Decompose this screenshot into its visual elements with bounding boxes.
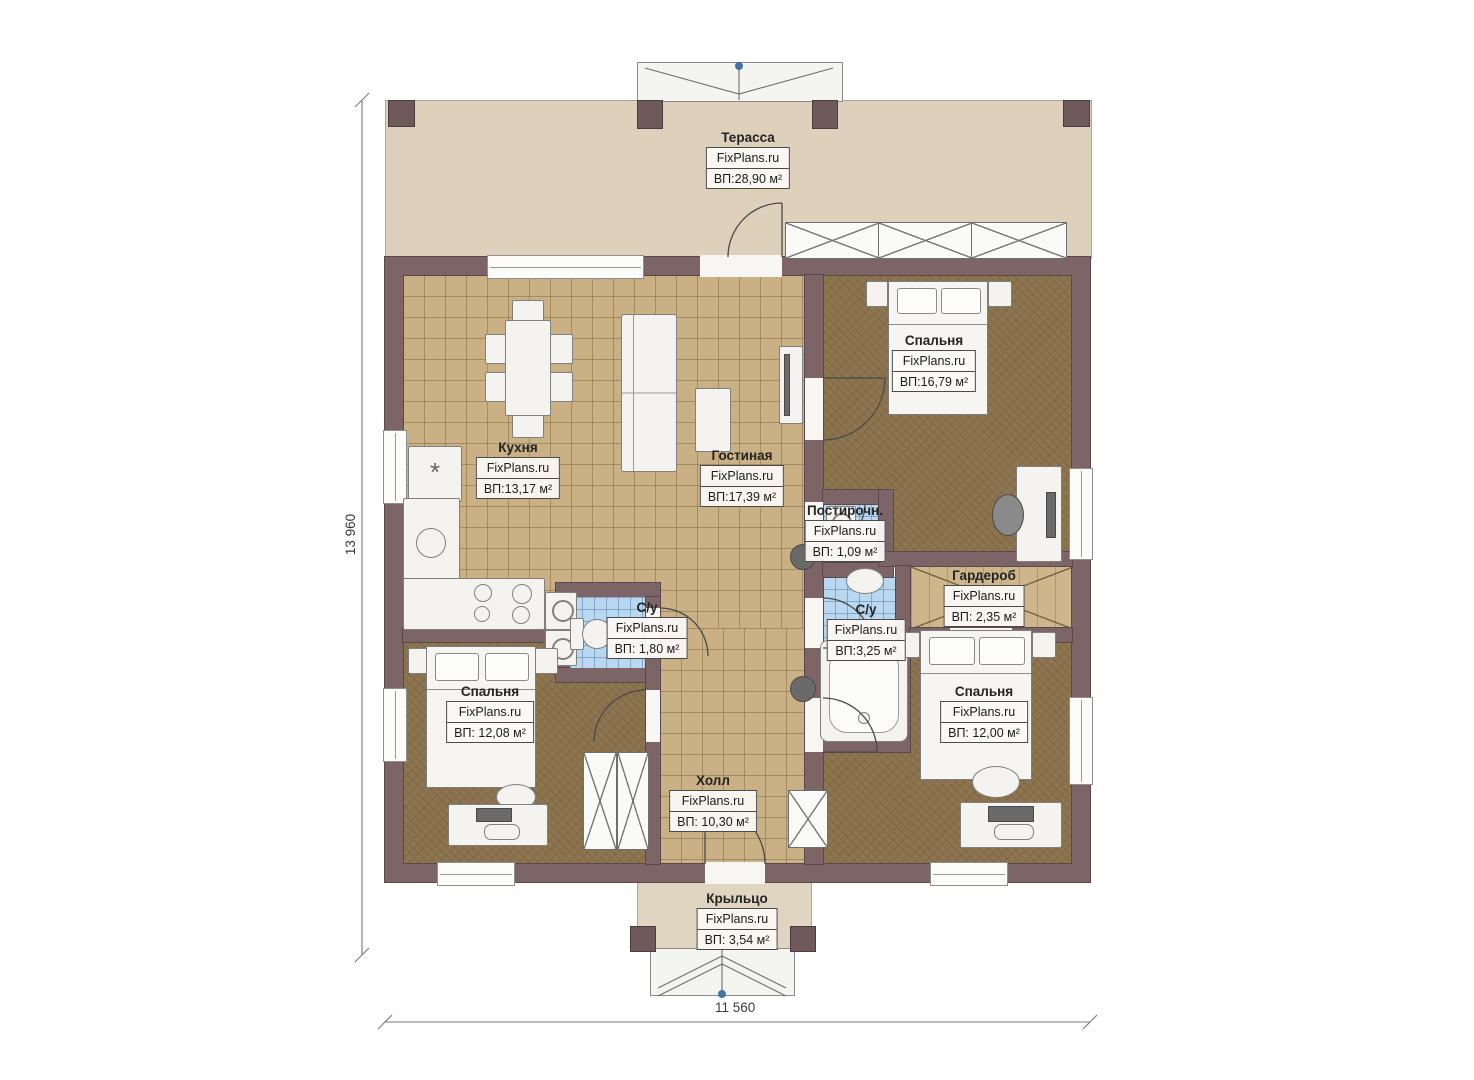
room-name: Спальня [892, 333, 976, 348]
dimension-vertical: 13 960 [343, 514, 358, 555]
kitchen-sink-icon [416, 528, 446, 558]
terrace-post [637, 100, 663, 129]
room-name: Холл [669, 773, 757, 788]
room-info-box: FixPlans.ru ВП:28,90 м² [706, 147, 790, 189]
room-name: Гардероб [944, 568, 1025, 583]
room-area: ВП: 2,35 м² [945, 606, 1024, 627]
office-chair [992, 494, 1024, 536]
fridge-icon: * [408, 446, 462, 502]
room-area: ВП: 1,09 м² [806, 541, 885, 562]
room-area: ВП: 10,30 м² [670, 811, 756, 832]
room-name: С/у [607, 600, 688, 615]
stove-burner [512, 584, 532, 604]
room-area: ВП: 12,08 м² [447, 722, 533, 743]
dining-table [505, 320, 551, 416]
pillow [485, 653, 529, 681]
room-brand: FixPlans.ru [608, 618, 687, 638]
room-info-box: FixPlans.ru ВП: 12,00 м² [940, 701, 1028, 743]
room-label-porch: Крыльцо FixPlans.ru ВП: 3,54 м² [697, 891, 778, 950]
bath-large-door-opening [805, 598, 823, 648]
wardrobe-cabinet [788, 790, 828, 848]
room-area: ВП:13,17 м² [477, 478, 559, 499]
room-brand: FixPlans.ru [477, 458, 559, 478]
nightstand [988, 281, 1012, 307]
kitchen-side-window [383, 430, 407, 504]
terrace-post [1063, 100, 1090, 127]
desk-chair [972, 766, 1020, 798]
room-area: ВП: 1,80 м² [608, 638, 687, 659]
porch-post [630, 926, 656, 952]
room-name: Спальня [446, 684, 534, 699]
porch-post [790, 926, 816, 952]
terrace-post [812, 100, 838, 129]
tv-stand [779, 346, 803, 424]
room-brand: FixPlans.ru [828, 620, 905, 640]
room-name: Терасса [706, 130, 790, 145]
room-name: С/у [827, 602, 906, 617]
room-area: ВП:16,79 м² [893, 371, 975, 392]
room-info-box: FixPlans.ru ВП:16,79 м² [892, 350, 976, 392]
pillow [435, 653, 479, 681]
room-label-bedroom-top-right: Спальня FixPlans.ru ВП:16,79 м² [892, 333, 976, 392]
room-label-kitchen: Кухня FixPlans.ru ВП:13,17 м² [476, 440, 560, 499]
room-name: Крыльцо [697, 891, 778, 906]
bedroom-bl-door-opening [646, 690, 660, 742]
room-brand: FixPlans.ru [698, 909, 777, 929]
room-label-bath-large: С/у FixPlans.ru ВП:3,25 м² [827, 602, 906, 661]
room-info-box: FixPlans.ru ВП: 10,30 м² [669, 790, 757, 832]
terrace-steps [637, 62, 843, 102]
wall-bath-small-bottom [556, 668, 660, 682]
room-info-box: FixPlans.ru ВП: 1,09 м² [805, 520, 886, 562]
bathtub-drain [858, 712, 870, 724]
coffee-table [695, 388, 731, 452]
tv-icon [784, 354, 790, 416]
room-info-box: FixPlans.ru ВП:13,17 м² [476, 457, 560, 499]
terrace-post [388, 100, 415, 127]
pillow [941, 288, 981, 314]
dining-chair [512, 414, 544, 438]
room-name: Гостиная [700, 448, 784, 463]
room-brand: FixPlans.ru [945, 586, 1024, 606]
glazing-panel [878, 222, 973, 259]
bedroom-tr-door-opening [805, 378, 823, 440]
room-info-box: FixPlans.ru ВП: 12,08 м² [446, 701, 534, 743]
bedroom-bl-bottom-window [437, 862, 515, 886]
kitchen-window [487, 255, 644, 279]
keyboard-icon [484, 824, 520, 840]
glazing-panel [971, 222, 1067, 259]
room-area: ВП:17,39 м² [701, 486, 783, 507]
dining-chair [549, 334, 573, 364]
room-label-wardrobe: Гардероб FixPlans.ru ВП: 2,35 м² [944, 568, 1025, 627]
room-brand: FixPlans.ru [806, 521, 885, 541]
room-label-terrace: Терасса FixPlans.ru ВП:28,90 м² [706, 130, 790, 189]
room-area: ВП: 12,00 м² [941, 722, 1027, 743]
nightstand [408, 648, 428, 674]
room-area: ВП:28,90 м² [707, 168, 789, 189]
room-brand: FixPlans.ru [941, 702, 1027, 722]
room-info-box: FixPlans.ru ВП: 3,54 м² [697, 908, 778, 950]
nightstand [1032, 632, 1056, 658]
room-label-hall: Холл FixPlans.ru ВП: 10,30 м² [669, 773, 757, 832]
terrace-door-opening [700, 255, 782, 277]
sofa-icon [621, 314, 677, 472]
porch-steps [650, 948, 795, 996]
room-label-bath-small: С/у FixPlans.ru ВП: 1,80 м² [607, 600, 688, 659]
nightstand [866, 281, 888, 307]
room-info-box: FixPlans.ru ВП: 1,80 м² [607, 617, 688, 659]
room-brand: FixPlans.ru [447, 702, 533, 722]
bedroom-br-side-window [1069, 697, 1093, 785]
sink-icon [846, 568, 884, 594]
glazing-panel [785, 222, 880, 259]
room-info-box: FixPlans.ru ВП:17,39 м² [700, 465, 784, 507]
stove-burner [474, 584, 492, 602]
bedroom-tr-side-window [1069, 468, 1093, 560]
wall-bedroom-bl-top [403, 628, 556, 642]
wardrobe-cabinet [583, 752, 617, 850]
printer-icon [476, 808, 512, 822]
room-label-laundry: Постирочн. FixPlans.ru ВП: 1,09 м² [805, 503, 886, 562]
pillow [929, 637, 975, 665]
pillow [979, 637, 1025, 665]
stove-burner [474, 606, 490, 622]
floor-plan-canvas: * [0, 0, 1474, 1080]
room-info-box: FixPlans.ru ВП:3,25 м² [827, 619, 906, 661]
room-name: Кухня [476, 440, 560, 455]
room-brand: FixPlans.ru [893, 351, 975, 371]
room-brand: FixPlans.ru [707, 148, 789, 168]
pillow [897, 288, 937, 314]
room-name: Постирочн. [805, 503, 886, 518]
bedroom-bl-side-window [383, 688, 407, 762]
dimension-horizontal: 11 560 [715, 1000, 755, 1015]
room-brand: FixPlans.ru [701, 466, 783, 486]
room-area: ВП: 3,54 м² [698, 929, 777, 950]
entrance-door-opening [705, 862, 765, 884]
boiler-icon [790, 676, 816, 702]
stove-burner [512, 606, 530, 624]
dining-chair [549, 372, 573, 402]
room-info-box: FixPlans.ru ВП: 2,35 м² [944, 585, 1025, 627]
room-label-bedroom-bottom-right: Спальня FixPlans.ru ВП: 12,00 м² [940, 684, 1028, 743]
bedroom-br-bottom-window [930, 862, 1008, 886]
wardrobe-cabinet [617, 752, 649, 850]
keyboard-icon [994, 824, 1034, 840]
wall-center [805, 275, 823, 864]
room-area: ВП:3,25 м² [828, 640, 905, 661]
room-brand: FixPlans.ru [670, 791, 756, 811]
monitor-icon [988, 806, 1034, 822]
nightstand [534, 648, 558, 674]
room-label-bedroom-bottom-left: Спальня FixPlans.ru ВП: 12,08 м² [446, 684, 534, 743]
room-name: Спальня [940, 684, 1028, 699]
monitor-icon [1046, 492, 1056, 538]
room-label-living: Гостиная FixPlans.ru ВП:17,39 м² [700, 448, 784, 507]
